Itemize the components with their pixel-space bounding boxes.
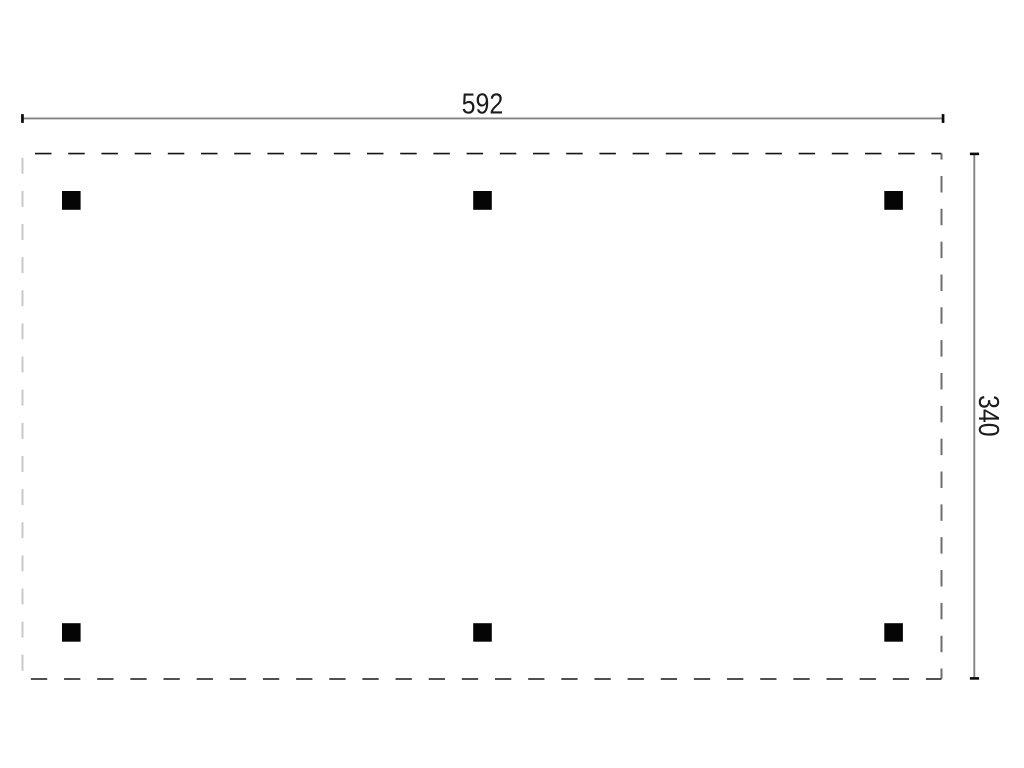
svg-text:592: 592	[462, 89, 504, 121]
svg-text:340: 340	[972, 395, 1004, 437]
